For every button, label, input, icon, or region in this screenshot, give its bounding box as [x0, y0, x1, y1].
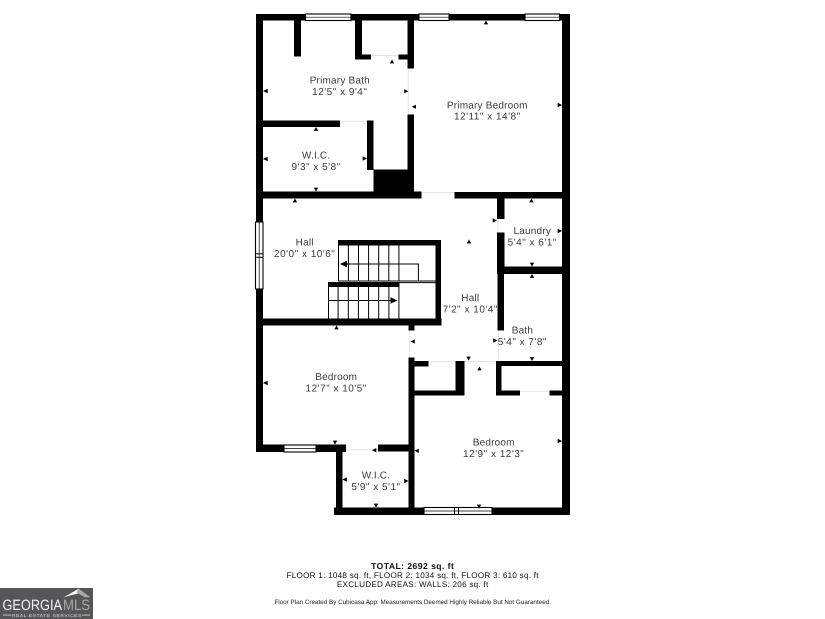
svg-text:Laundry: Laundry — [514, 226, 552, 237]
svg-text:W.I.C.: W.I.C. — [362, 470, 390, 481]
svg-text:TOTAL: 2692 sq. ft: TOTAL: 2692 sq. ft — [371, 561, 454, 571]
svg-text:5'9" x 5'1": 5'9" x 5'1" — [351, 482, 400, 493]
svg-text:W.I.C.: W.I.C. — [302, 150, 330, 161]
svg-text:12'7" x 10'5": 12'7" x 10'5" — [306, 384, 367, 395]
svg-text:7'2" x 10'4": 7'2" x 10'4" — [443, 305, 498, 316]
svg-text:Bath: Bath — [512, 326, 533, 337]
svg-text:20'0" x 10'6": 20'0" x 10'6" — [274, 249, 335, 260]
svg-text:Hall: Hall — [461, 293, 479, 304]
svg-text:REAL ESTATE SERVICES: REAL ESTATE SERVICES — [12, 613, 82, 618]
svg-text:Primary Bedroom: Primary Bedroom — [447, 100, 528, 111]
svg-text:Hall: Hall — [296, 237, 314, 248]
svg-text:MLS: MLS — [63, 597, 90, 614]
svg-text:5'4" x 6'1": 5'4" x 6'1" — [508, 237, 557, 248]
svg-text:Bedroom: Bedroom — [473, 437, 515, 448]
svg-text:12'11" x 14'8": 12'11" x 14'8" — [454, 111, 521, 122]
svg-text:GEORGIA: GEORGIA — [3, 597, 63, 614]
svg-text:9'3" x 5'8": 9'3" x 5'8" — [291, 162, 340, 173]
svg-text:FLOOR 1: 1048 sq. ft, FLOOR 2:: FLOOR 1: 1048 sq. ft, FLOOR 2: 1034 sq. … — [287, 571, 540, 580]
svg-text:Primary Bath: Primary Bath — [310, 75, 370, 86]
svg-text:12'9" x 12'3": 12'9" x 12'3" — [463, 449, 524, 460]
svg-text:5'4" x 7'8": 5'4" x 7'8" — [498, 337, 547, 348]
svg-text:EXCLUDED AREAS: WALLS: 206 sq.: EXCLUDED AREAS: WALLS: 206 sq. ft — [337, 580, 489, 589]
svg-text:Bedroom: Bedroom — [315, 372, 357, 383]
svg-text:12'5" x 9'4": 12'5" x 9'4" — [312, 87, 367, 98]
svg-text:Floor Plan Created By Cubicasa: Floor Plan Created By Cubicasa App. Meas… — [274, 599, 551, 606]
